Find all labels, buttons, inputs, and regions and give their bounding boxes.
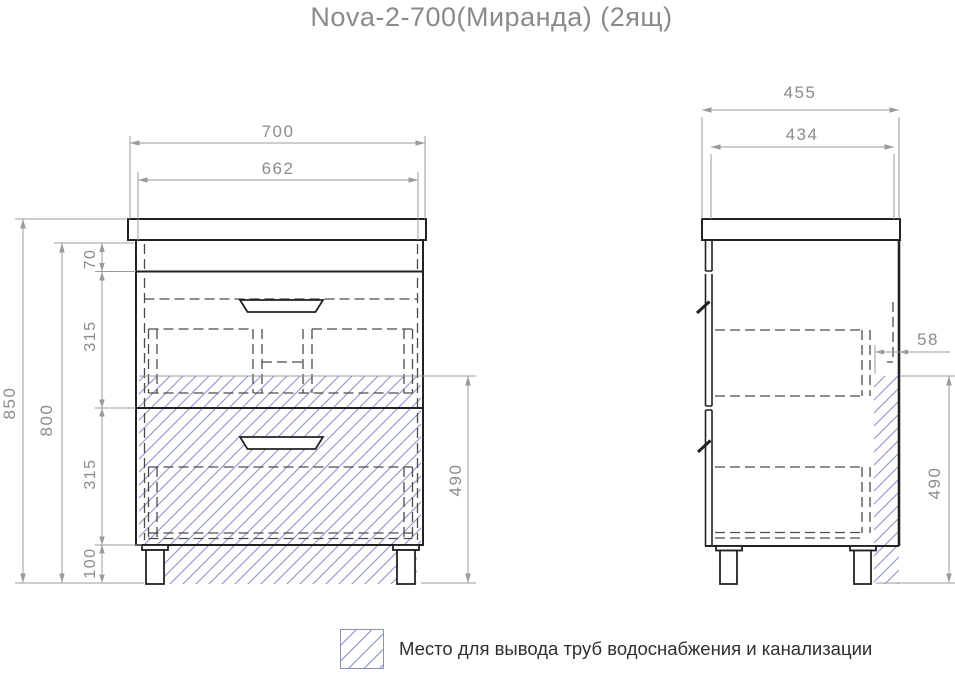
drawing-page: Nova-2-700(Миранда) (2ящ) — [0, 0, 955, 676]
dim-front-pipe-490: 490 — [446, 464, 465, 497]
dim-front-seg-315-top: 315 — [82, 320, 99, 351]
front-view: 700 662 850 800 70 315 315 100 490 — [0, 122, 476, 584]
side-legs — [716, 546, 876, 584]
pipe-zone-legend: Место для вывода труб водоснабжения и ка… — [340, 629, 872, 669]
side-view: 455 434 58 490 — [697, 83, 955, 584]
drawer1-handle — [240, 300, 323, 312]
dim-front-width-662: 662 — [262, 159, 295, 178]
dim-front-seg-70: 70 — [82, 249, 99, 270]
dim-front-height-800: 800 — [37, 404, 56, 437]
dim-front-seg-100: 100 — [82, 547, 99, 578]
dim-front-seg-315-bottom: 315 — [82, 458, 99, 489]
technical-drawing: 700 662 850 800 70 315 315 100 490 — [0, 0, 955, 676]
front-countertop — [128, 219, 426, 240]
pipe-zone-hatch-side — [874, 376, 899, 584]
dim-side-pipe-490: 490 — [925, 467, 944, 500]
dim-side-depth-434: 434 — [786, 125, 819, 144]
dim-side-offset-58: 58 — [917, 330, 939, 349]
side-countertop — [702, 219, 900, 240]
pipe-zone-hatch-front — [139, 376, 421, 545]
hatch-swatch-icon — [340, 629, 384, 669]
dim-front-width-700: 700 — [262, 122, 295, 141]
pipe-zone-hatch-front-below — [165, 545, 417, 584]
dim-side-depth-455: 455 — [784, 83, 817, 102]
dim-front-height-850: 850 — [0, 387, 19, 420]
legend-label: Место для вывода труб водоснабжения и ка… — [399, 638, 872, 660]
drawer2-handle — [240, 437, 323, 449]
